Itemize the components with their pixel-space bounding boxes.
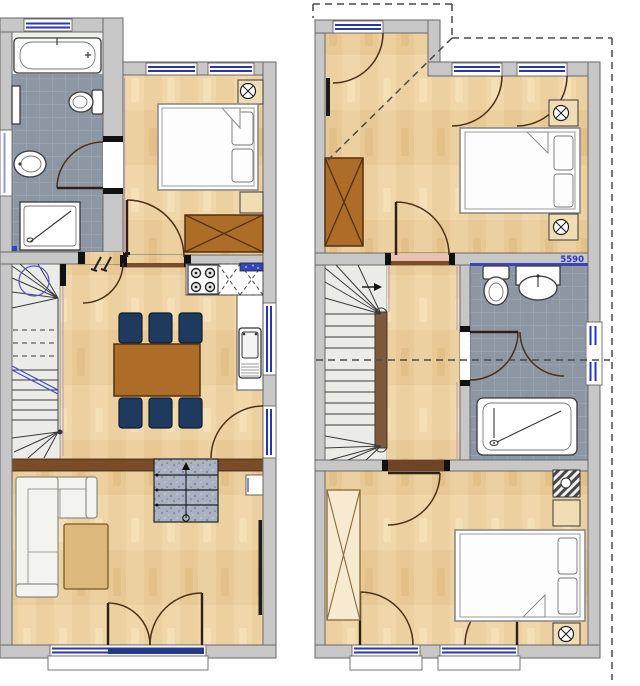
bathroom-side-window <box>0 130 12 196</box>
attic-radiator <box>326 78 330 116</box>
bedroom-window-1 <box>146 63 197 75</box>
toilet <box>69 90 103 114</box>
floor-plan-canvas: 5590 <box>0 0 640 686</box>
window-sill <box>350 656 422 670</box>
newel-post <box>58 430 63 435</box>
upper-mid-bottom-wall <box>315 460 588 471</box>
ground-floor-plan <box>0 18 276 670</box>
door-jamb <box>382 460 388 471</box>
kitchen-sink <box>239 328 261 378</box>
nightstand-with-light <box>238 80 263 104</box>
living-radiator <box>259 520 263 615</box>
door-jamb <box>78 252 85 264</box>
landing-floor <box>387 265 460 460</box>
window-sill <box>48 656 208 670</box>
door-jamb <box>385 253 391 265</box>
wall-panel <box>246 475 263 495</box>
upper-toilet <box>483 266 509 305</box>
kitchen-sill-granite <box>240 263 263 271</box>
bathroom-window <box>24 19 72 31</box>
bathtub <box>14 38 101 73</box>
interior-steps <box>154 459 218 522</box>
attic-wardrobe <box>325 158 363 246</box>
door-jamb <box>460 380 470 386</box>
landing-bottom-threshold <box>388 460 444 471</box>
nightstand-with-light <box>549 214 578 240</box>
door-jamb <box>449 253 455 265</box>
door-jamb <box>444 460 450 471</box>
hall-opening <box>85 252 123 264</box>
double-bed <box>158 104 258 190</box>
stair-wall-stub <box>60 264 66 286</box>
rear-wardrobe-outline <box>327 490 360 620</box>
rear-bedroom-bed <box>455 530 585 621</box>
bedside-table <box>553 500 580 526</box>
bathroom-dimension-label: 5590 <box>560 255 584 265</box>
upper-left-exterior-wall <box>315 20 325 658</box>
threshold-edge <box>391 261 449 265</box>
nightstand-with-light <box>549 100 578 126</box>
living-room-step-edge <box>12 459 263 471</box>
window-sill <box>438 656 520 670</box>
upper-shower-tray <box>477 398 577 455</box>
door-jamb <box>460 326 470 332</box>
coffee-table <box>64 524 108 589</box>
bedroom-window-2 <box>208 63 254 75</box>
stove <box>188 265 218 294</box>
kitchen-window <box>263 303 276 375</box>
bedside-table <box>240 192 263 213</box>
bedroom-door-threshold <box>127 263 184 267</box>
door-jamb <box>103 136 123 142</box>
radiator <box>12 86 20 124</box>
left-exterior-wall <box>0 18 12 658</box>
stair-spine-wall <box>375 312 387 448</box>
upper-floor-plan <box>315 20 602 670</box>
bathroom-door-opening <box>460 332 470 380</box>
ceiling-light-icon <box>553 623 580 645</box>
door-jamb <box>103 188 123 194</box>
chimney-flue <box>553 470 580 497</box>
wardrobe <box>185 215 263 252</box>
floor-plan-page: 5590 <box>0 0 640 686</box>
shower-tray <box>12 202 80 251</box>
dining-table <box>114 344 200 396</box>
bathroom-door-opening <box>103 142 123 188</box>
front-bedroom-bed <box>460 128 580 213</box>
wash-basin <box>14 151 46 177</box>
upper-wash-basin <box>516 266 560 300</box>
